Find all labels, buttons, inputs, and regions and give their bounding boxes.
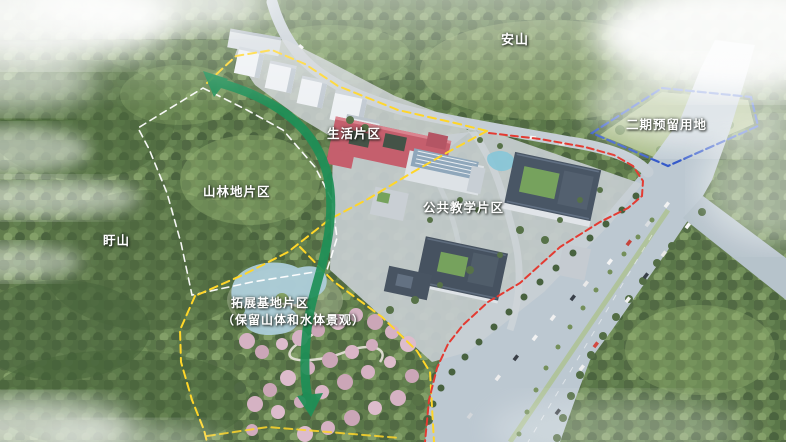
label-phase2-reserved-land: 二期预留用地 [626,114,707,133]
label-mountain-forest-zone: 山林地片区 [203,181,271,200]
label-expansion-zone-line2: （保留山体和水体景观） [222,311,365,328]
label-mountain-anshan: 安山 [501,29,529,48]
site-plan-rendering: 安山 二期预留用地 生活片区 山林地片区 盱山 公共教学片区 拓展基地片区 （保… [0,0,786,442]
aerial-rendering-canvas [0,0,786,442]
label-living-zone: 生活片区 [327,123,381,142]
clouds-fog [0,0,786,442]
label-expansion-zone-line1: 拓展基地片区 [231,294,309,311]
label-mountain-xushan: 盱山 [103,230,130,249]
label-teaching-zone: 公共教学片区 [423,197,504,216]
